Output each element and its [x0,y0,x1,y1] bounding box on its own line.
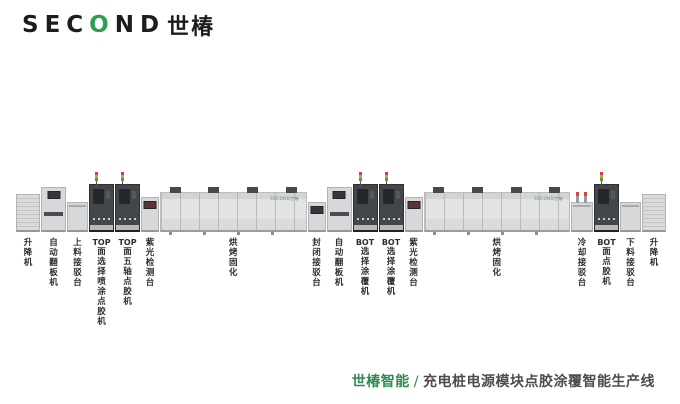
machine-base [116,225,139,230]
machine-unit-uv-inspection-station-2: 紫光检测台 [405,170,423,288]
machine-top-five-axis-dispenser [115,184,140,232]
machine-area [594,170,619,232]
machine-area [41,170,66,232]
machine-label-text: 面五轴点胶机 [123,247,132,307]
signal-post-icon [576,192,579,203]
machine-bot-dispenser [594,184,619,232]
brand-logo: SECOND世椿 [22,10,215,40]
vent-block [208,187,219,193]
button-row [93,218,110,220]
machine-label: 紫光检测台 [409,238,418,288]
machine-label: 下料接驳台 [626,238,635,288]
machine-label-text: 自动翻板机 [335,238,344,288]
machine-unit-unloading-conveyor: 下料接驳台 [620,170,641,288]
machine-lift-infeed [16,194,40,232]
machine-label-text: 面选择喷涂点胶机 [97,247,106,327]
machine-label: BOT选择涂覆机 [356,238,374,297]
caption: 世椿智能/充电桩电源模块点胶涂覆智能生产线 [352,371,655,391]
machine-area [141,170,159,232]
machine-curing-oven-1: SECOND世椿 [160,192,307,232]
oven-vents [170,187,297,193]
machine-sealed-conveyor [308,202,326,232]
inspection-screen [407,201,420,209]
machine-unit-bot-selective-coater-1: BOT选择涂覆机 [353,170,378,297]
machine-area [115,170,140,232]
machine-unit-curing-oven-2: SECOND世椿烘烤固化 [424,170,571,278]
brand-logo-cjk: 世椿 [167,9,215,41]
machine-unit-sealed-conveyor: 封闭接驳台 [308,170,326,288]
machine-label: 自动翻板机 [49,238,58,288]
machine-area [405,170,423,232]
machine-label: 升降机 [24,238,33,268]
button-row [598,218,615,220]
machine-top-selective-spray-dispenser [89,184,114,232]
machine-base [90,225,113,230]
vent-block [170,187,181,193]
brand-logo-green-o: O [89,12,115,38]
oven-vents [433,187,560,193]
machine-area [571,170,593,232]
flip-slot [44,212,63,216]
machine-unloading-conveyor [620,202,641,232]
machine-label: 自动翻板机 [335,238,344,288]
machine-area [642,170,666,232]
machine-label-prefix: BOT [356,238,374,247]
machine-label: TOP面五轴点胶机 [118,238,136,307]
button-row [383,218,400,220]
machine-label-text: 升降机 [650,238,659,268]
vent-block [286,187,297,193]
oven-brand-label: SECOND世椿 [270,196,299,202]
machine-base [595,225,618,230]
machine-label: BOT选择涂覆机 [382,238,400,297]
oven-brand-label: SECOND世椿 [534,196,563,202]
machine-label: 紫光检测台 [146,238,155,288]
machine-lift-outfeed [642,194,666,232]
machine-label-text: 上料接驳台 [73,238,82,288]
control-panel [132,191,136,199]
machine-area [327,170,352,232]
signal-tower-icon [121,172,124,185]
tower-stem [601,181,602,185]
signal-tower-icon [359,172,362,185]
machine-label-prefix: TOP [118,238,136,247]
conveyor-belt-edge [69,205,86,207]
machine-label-text: 冷却接驳台 [578,238,587,288]
machine-loading-conveyor [67,202,88,232]
machine-unit-loading-conveyor: 上料接驳台 [67,170,88,288]
vent-block [247,187,258,193]
machine-area: SECOND世椿 [160,170,307,232]
machine-base [354,225,377,230]
machine-label: 烘烤固化 [492,238,501,278]
machine-label-prefix: BOT [382,238,400,247]
machine-label-text: 自动翻板机 [49,238,58,288]
machine-curing-oven-2: SECOND世椿 [424,192,571,232]
button-row [119,218,136,220]
machine-label-text: 紫光检测台 [409,238,418,288]
machine-label-text: 面点胶机 [602,247,611,287]
machine-auto-board-flipper-2 [327,187,352,232]
machine-base [380,225,403,230]
monitor-icon [333,191,346,199]
machine-unit-lift-infeed: 升降机 [16,170,40,268]
brand-logo-text-pre: SEC [22,12,89,38]
control-panel [106,191,110,199]
machine-area [353,170,378,232]
machine-area [16,170,40,232]
machine-area: SECOND世椿 [424,170,571,232]
machine-area [620,170,641,232]
machine-unit-bot-selective-coater-2: BOT选择涂覆机 [379,170,404,297]
machine-unit-auto-board-flipper-1: 自动翻板机 [41,170,66,288]
machine-auto-board-flipper-1 [41,187,66,232]
conveyor-belt-edge [622,205,639,207]
signal-tower-icon [95,172,98,185]
brand-logo-text-post: ND [115,12,165,38]
control-panel [370,191,374,199]
machine-area [67,170,88,232]
machine-label-text: 下料接驳台 [626,238,635,288]
tower-stem [122,181,123,185]
production-line: 升降机自动翻板机上料接驳台TOP面选择喷涂点胶机TOP面五轴点胶机紫光检测台SE… [16,170,666,327]
inspection-screen [144,201,157,209]
machine-window [383,189,394,204]
machine-label: 冷却接驳台 [578,238,587,288]
machine-label-text: 紫光检测台 [146,238,155,288]
machine-bot-selective-coater-2 [379,184,404,232]
machine-unit-auto-board-flipper-2: 自动翻板机 [327,170,352,288]
caption-brand: 世椿智能 [352,374,410,390]
machine-window [357,189,368,204]
signal-tower-icon [385,172,388,185]
conveyor-belt-edge [573,205,591,207]
machine-cooling-conveyor [571,202,593,232]
machine-label-text: 烘烤固化 [229,238,238,278]
caption-title: 充电桩电源模块点胶涂覆智能生产线 [423,374,655,390]
monitor-icon [47,191,60,199]
monitor-icon [310,206,323,214]
machine-uv-inspection-station-1 [141,197,159,232]
machine-label: TOP面选择喷涂点胶机 [92,238,110,327]
vent-block [433,187,444,193]
tower-stem [360,181,361,185]
control-panel [396,191,400,199]
machine-uv-inspection-station-2 [405,197,423,232]
signal-tower-icon [600,172,603,185]
control-panel [611,191,615,199]
machine-bot-selective-coater-1 [353,184,378,232]
machine-label: BOT面点胶机 [597,238,615,287]
caption-separator: / [410,374,423,390]
button-row [357,218,374,220]
machine-label-text: 升降机 [24,238,33,268]
machine-label: 上料接驳台 [73,238,82,288]
vent-block [549,187,560,193]
machine-unit-uv-inspection-station-1: 紫光检测台 [141,170,159,288]
machine-label-text: 选择涂覆机 [360,247,369,297]
machine-unit-top-selective-spray-dispenser: TOP面选择喷涂点胶机 [89,170,114,327]
machine-label-prefix: TOP [92,238,110,247]
tower-stem [96,181,97,185]
signal-post-icon [584,192,587,203]
machine-area [379,170,404,232]
tower-stem [386,181,387,185]
machine-unit-top-five-axis-dispenser: TOP面五轴点胶机 [115,170,140,307]
vent-block [472,187,483,193]
machine-window [93,189,104,204]
machine-label: 烘烤固化 [229,238,238,278]
machine-area [308,170,326,232]
machine-window [598,189,609,204]
flip-slot [330,212,349,216]
machine-area [89,170,114,232]
machine-label-text: 选择涂覆机 [386,247,395,297]
machine-label-text: 烘烤固化 [492,238,501,278]
machine-label-text: 封闭接驳台 [312,238,321,288]
machine-label: 封闭接驳台 [312,238,321,288]
machine-label-prefix: BOT [597,238,615,247]
vent-block [511,187,522,193]
machine-unit-lift-outfeed: 升降机 [642,170,666,268]
machine-unit-curing-oven-1: SECOND世椿烘烤固化 [160,170,307,278]
machine-unit-bot-dispenser: BOT面点胶机 [594,170,619,287]
machine-unit-cooling-conveyor: 冷却接驳台 [571,170,593,288]
machine-window [119,189,130,204]
machine-label: 升降机 [650,238,659,268]
